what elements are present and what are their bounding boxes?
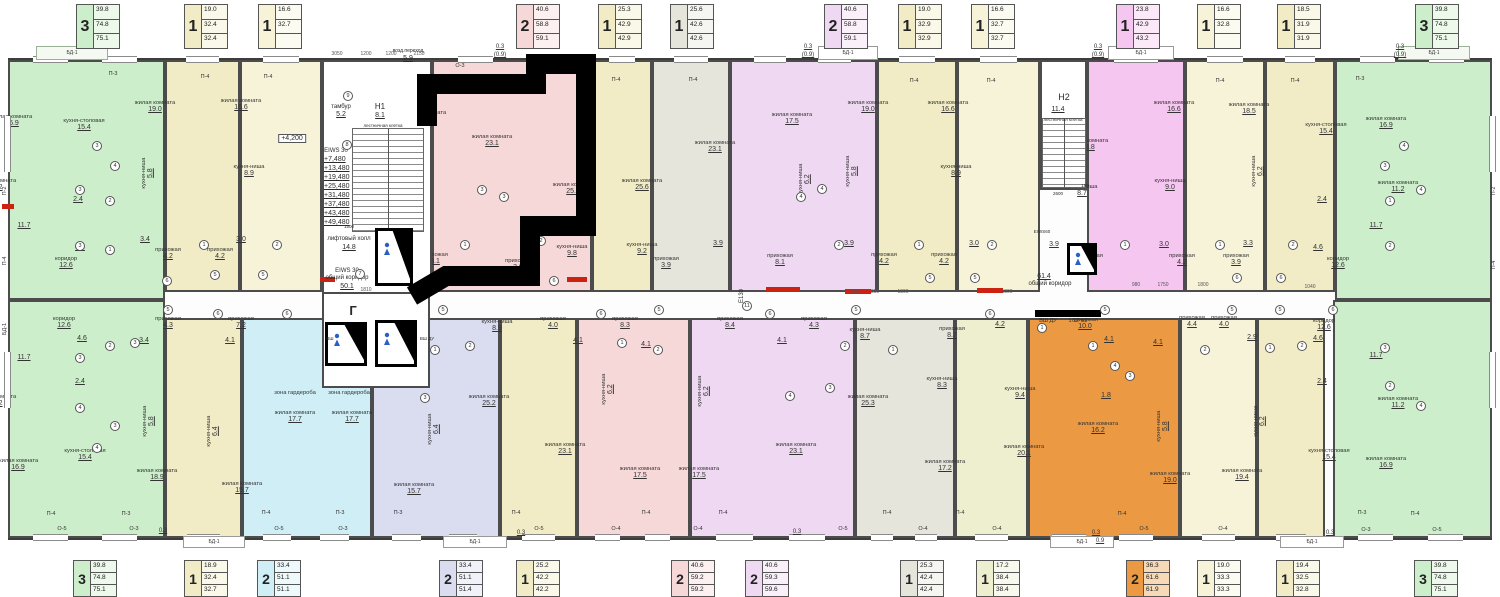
door-tag: 2 [1385, 241, 1395, 251]
door-tag: 3 [75, 241, 85, 251]
unit-t8[interactable] [877, 60, 957, 292]
door-tag: 2 [1297, 341, 1307, 351]
unit-summary-bottom-13[interactable]: 339.874.875.1 [1414, 560, 1458, 597]
plan-label: ВШ [326, 336, 333, 341]
window [1360, 56, 1395, 63]
unit-area-value: 19.0 [201, 5, 227, 20]
unit-b9[interactable] [955, 318, 1028, 538]
door-tag: 3 [477, 185, 487, 195]
door-tag: 1 [1088, 341, 1098, 351]
dimension-label: (0.9) [1394, 52, 1406, 58]
window [102, 534, 137, 541]
unit-summary-top-11[interactable]: 116.632.8 [1197, 4, 1241, 49]
axis-tag: О-5 [1139, 526, 1148, 532]
unit-area-values: 19.032.432.4 [201, 5, 227, 48]
unit-area-values: 33.451.151.1 [274, 561, 300, 596]
unit-area-value: 59.1 [533, 34, 559, 48]
unit-summary-top-9[interactable]: 116.632.732.7 [971, 4, 1015, 49]
plan-label: 50.1 [340, 283, 354, 290]
elevator-3 [375, 320, 417, 367]
dimension-label: 0.3 [1094, 44, 1102, 50]
dimension-label: (0.9) [802, 52, 814, 58]
unit-area-value: 25.2 [533, 561, 559, 573]
door-tag: 7 [355, 269, 365, 279]
level-mark: +31,480 [324, 191, 350, 200]
unit-summary-top-1[interactable]: 339.874.875.1 [76, 4, 120, 49]
plan-label: 5.9 [403, 55, 413, 62]
door-tag: 1 [199, 240, 209, 250]
axis-tag: О-3 [455, 63, 464, 69]
unit-area-value: 59.1 [841, 34, 867, 48]
window [915, 534, 937, 541]
dimension-label: 1040 [1304, 284, 1315, 290]
dimension-label: 980 [1132, 282, 1140, 288]
axis-tag: П-4 [987, 78, 996, 84]
dimension-label: (0.9) [494, 52, 506, 58]
unit-b2[interactable] [165, 318, 242, 538]
door-tag: 3 [75, 353, 85, 363]
unit-rooms-count: 1 [1277, 561, 1293, 596]
axis-tag: О-4 [918, 526, 927, 532]
unit-area-value: 42.2 [533, 585, 559, 596]
door-tag: 4 [110, 161, 120, 171]
unit-t3[interactable] [240, 60, 322, 292]
door-tag: 6 [162, 276, 172, 286]
unit-area-value: 36.3 [1143, 561, 1169, 573]
window [458, 56, 493, 63]
unit-area-value: 75.1 [90, 585, 116, 596]
unit-area-value: 32.7 [988, 20, 1014, 35]
door-tag: 4 [1399, 141, 1409, 151]
unit-area-value: 32.7 [275, 20, 301, 35]
level-mark: +13,480 [324, 164, 350, 173]
door-tag: 6 [1328, 305, 1338, 315]
unit-area-value: 74.8 [1431, 573, 1457, 585]
window [789, 534, 825, 541]
unit-area-value: 40.6 [762, 561, 788, 573]
unit-rooms-count: 2 [258, 561, 274, 596]
axis-tag: О-5 [838, 526, 847, 532]
door-tag: 2 [653, 345, 663, 355]
door-tag: 11 [742, 301, 752, 311]
door-tag: 2 [1385, 381, 1395, 391]
balcony-door-tag: БД-1 [1050, 536, 1114, 548]
door-tag: 1 [430, 345, 440, 355]
plan-label: EIWS60 [1034, 229, 1051, 234]
plan-label: 5.2 [336, 111, 346, 118]
unit-t11[interactable] [1185, 60, 1265, 292]
unit-t2[interactable] [165, 60, 240, 292]
axis-tag: П-4 [264, 74, 273, 80]
axis-tag: П-3 [1358, 510, 1367, 516]
unit-area-value: 16.6 [275, 5, 301, 20]
door-tag: 9 [343, 91, 353, 101]
plan-label: 8.1 [375, 112, 385, 119]
unit-rooms-count: 1 [1278, 5, 1294, 48]
unit-area-value: 33.3 [1214, 585, 1240, 596]
unit-area-value: 38.4 [993, 573, 1019, 585]
unit-rooms-count: 1 [977, 561, 993, 596]
elevator-icon [332, 333, 342, 347]
unit-area-values: 33.451.151.4 [456, 561, 482, 596]
door-tag: 4 [1416, 185, 1426, 195]
axis-tag: П-4 [1216, 78, 1225, 84]
unit-b8[interactable] [855, 318, 955, 538]
unit-area-values: 25.642.642.6 [687, 5, 713, 48]
window [33, 534, 68, 541]
unit-t4[interactable] [432, 60, 592, 292]
door-tag: 5 [1227, 305, 1237, 315]
unit-area-value [1214, 34, 1240, 48]
dimension-label: 0.3 [1092, 530, 1100, 536]
axis-tag: П-4 [689, 77, 698, 83]
door-tag: 3 [499, 192, 509, 202]
plan-label: Н2 [1058, 92, 1070, 102]
door-tag: 3 [1380, 161, 1390, 171]
level-mark: +25,480 [324, 182, 350, 191]
unit-summary-bottom-10[interactable]: 236.361.661.9 [1126, 560, 1170, 597]
unit-b5[interactable] [500, 318, 577, 538]
elevator-icon [382, 242, 392, 256]
unit-rooms-count: 1 [1117, 5, 1133, 48]
window [980, 56, 1017, 63]
window [1207, 56, 1242, 63]
door-tag: 6 [1232, 273, 1242, 283]
unit-area-value: 40.6 [841, 5, 867, 20]
unit-b11[interactable] [1180, 318, 1257, 538]
axis-tag: П-4 [201, 74, 210, 80]
window [1358, 534, 1393, 541]
window [754, 56, 786, 63]
balcony-door-tag: БД-1 [443, 536, 507, 548]
unit-area-value: 32.4 [201, 20, 227, 35]
door-tag: 6 [213, 309, 223, 319]
unit-rooms-count: 1 [599, 5, 615, 48]
unit-summary-top-4[interactable]: 240.658.859.1 [516, 4, 560, 49]
door-tag: 6 [282, 309, 292, 319]
axis-tag: П-4 [1411, 511, 1420, 517]
unit-area-values: 16.632.732.7 [988, 5, 1014, 48]
door-tag: 3 [92, 141, 102, 151]
door-tag: 4 [817, 184, 827, 194]
unit-area-value: 42.2 [533, 573, 559, 585]
dimension-label: 850 [871, 289, 879, 295]
unit-area-value: 40.6 [688, 561, 714, 573]
unit-summary-bottom-7[interactable]: 240.659.359.6 [745, 560, 789, 597]
unit-rooms-count: 3 [1416, 5, 1432, 48]
axis-tag: П-3 [336, 510, 345, 516]
unit-area-value: 42.6 [687, 20, 713, 35]
unit-area-values: 39.874.875.1 [1431, 561, 1457, 596]
level-mark: +37,480 [324, 200, 350, 209]
unit-area-value: 17.2 [993, 561, 1019, 573]
axis-tag: П-3 [394, 510, 403, 516]
unit-b1[interactable] [8, 300, 165, 538]
door-tag: 5 [851, 305, 861, 315]
door-tag: 2 [1200, 345, 1210, 355]
unit-area-values: 18.932.432.7 [201, 561, 227, 596]
unit-area-values: 19.033.333.3 [1214, 561, 1240, 596]
window [263, 534, 292, 541]
door-tag: 5 [163, 305, 173, 315]
door-tag: 3 [75, 185, 85, 195]
unit-rooms-count: 2 [517, 5, 533, 48]
plan-label: общий коридор [1029, 281, 1072, 287]
door-tag: 3 [1125, 371, 1135, 381]
unit-area-values: 23.842.943.2 [1133, 5, 1159, 48]
window [1202, 534, 1236, 541]
unit-area-values: 40.658.859.1 [841, 5, 867, 48]
unit-area-value: 33.4 [456, 561, 482, 573]
unit-summary-top-12[interactable]: 118.531.931.9 [1277, 4, 1321, 49]
unit-area-value: 32.4 [201, 573, 227, 585]
axis-tag: П-3 [109, 71, 118, 77]
door-tag: 2 [840, 341, 850, 351]
window [645, 534, 670, 541]
unit-summary-top-8[interactable]: 119.032.932.9 [898, 4, 942, 49]
unit-t1[interactable] [8, 60, 165, 300]
unit-summary-bottom-1[interactable]: 339.874.875.1 [73, 560, 117, 597]
door-tag: 5 [258, 270, 268, 280]
door-tag: 5 [210, 270, 220, 280]
axis-tag: П-4 [612, 77, 621, 83]
plan-label: 180 [1081, 183, 1089, 188]
axis-tag: П-4 [1291, 78, 1300, 84]
unit-summary-bottom-8[interactable]: 125.342.442.4 [900, 560, 944, 597]
axis-tag: О-4 [1218, 526, 1227, 532]
unit-summary-top-6[interactable]: 125.642.642.6 [670, 4, 714, 49]
axis-tag: П-4 [512, 510, 521, 516]
axis-tag: П-3 [122, 511, 131, 517]
unit-summary-top-2[interactable]: 119.032.432.4 [184, 4, 228, 49]
unit-area-values: 19.432.532.8 [1293, 561, 1319, 596]
axis-tag: О-4 [693, 526, 702, 532]
window [1489, 352, 1496, 408]
unit-area-value: 75.1 [93, 34, 119, 48]
unit-summary-bottom-6[interactable]: 240.659.259.2 [671, 560, 715, 597]
unit-summary-top-7[interactable]: 240.658.859.1 [824, 4, 868, 49]
unit-area-value: 16.6 [1214, 5, 1240, 20]
unit-summary-top-10[interactable]: 123.842.943.2 [1116, 4, 1160, 49]
unit-summary-bottom-9[interactable]: 117.238.438.4 [976, 560, 1020, 597]
dimension-label: 1800 [897, 289, 908, 295]
unit-summary-bottom-2[interactable]: 118.932.432.7 [184, 560, 228, 597]
unit-area-value: 16.6 [988, 5, 1014, 20]
door-tag: 2 [987, 240, 997, 250]
window [522, 534, 556, 541]
staircase-1 [352, 128, 424, 232]
unit-t13[interactable] [1335, 60, 1492, 300]
door-tag: 3 [420, 393, 430, 403]
unit-area-value: 58.8 [841, 20, 867, 35]
axis-tag: П-4 [642, 510, 651, 516]
door-tag: 6 [596, 309, 606, 319]
unit-area-value: 25.6 [687, 5, 713, 20]
unit-summary-top-13[interactable]: 339.874.875.1 [1415, 4, 1459, 49]
elevator-shaft-mark [392, 323, 414, 361]
unit-area-value: 40.6 [533, 5, 559, 20]
unit-b6[interactable] [577, 318, 690, 538]
unit-area-value: 75.1 [1432, 34, 1458, 48]
unit-summary-top-5[interactable]: 125.342.942.9 [598, 4, 642, 49]
dimension-label: 0.3 [1396, 44, 1404, 50]
unit-summary-bottom-12[interactable]: 119.432.532.8 [1276, 560, 1320, 597]
door-tag: 3 [130, 338, 140, 348]
elevator-1 [375, 228, 413, 286]
axis-tag: П-4 [262, 510, 271, 516]
unit-area-value: 18.9 [201, 561, 227, 573]
unit-summary-top-3[interactable]: 116.632.7 [258, 4, 302, 49]
door-tag: 1 [460, 240, 470, 250]
door-tag: 1 [1385, 196, 1395, 206]
window [528, 56, 563, 63]
unit-area-value: 32.8 [1214, 20, 1240, 35]
level-mark: +49,480 [324, 218, 350, 227]
dimension-label: 3050 [331, 51, 342, 57]
unit-rooms-count: 1 [671, 5, 687, 48]
dimension-label: 0.3 [804, 44, 812, 50]
dimension-label: (0.9) [1092, 52, 1104, 58]
window [263, 56, 299, 63]
door-tag: 6 [1276, 273, 1286, 283]
unit-area-values: 39.874.875.1 [93, 5, 119, 48]
unit-area-values: 19.032.932.9 [915, 5, 941, 48]
axis-tag: О-3 [1361, 527, 1370, 533]
door-tag: 5 [970, 273, 980, 283]
unit-rooms-count: 2 [825, 5, 841, 48]
unit-area-values: 39.874.875.1 [1432, 5, 1458, 48]
unit-area-value: 32.7 [201, 585, 227, 596]
unit-area-value: 39.8 [90, 561, 116, 573]
window [320, 534, 349, 541]
door-tag: 2 [536, 236, 546, 246]
unit-t5[interactable] [592, 60, 652, 292]
unit-area-value: 58.8 [533, 20, 559, 35]
plan-label: лестничная клетка [1043, 117, 1082, 122]
radiator-strip [2, 204, 14, 209]
unit-rooms-count: 2 [440, 561, 456, 596]
unit-t12[interactable] [1265, 60, 1335, 292]
unit-area-value: 38.4 [993, 585, 1019, 596]
unit-t10[interactable] [1087, 60, 1185, 292]
unit-rooms-count: 1 [1198, 5, 1214, 48]
unit-summary-bottom-11[interactable]: 119.033.333.3 [1197, 560, 1241, 597]
unit-rooms-count: 1 [517, 561, 533, 596]
plan-label: +4,200 [278, 134, 306, 143]
axis-tag: П-4 [2, 257, 8, 266]
window [186, 56, 219, 63]
dimension-label: 1810 [360, 287, 371, 293]
axis-tag: О-5 [57, 526, 66, 532]
door-tag: 1 [914, 240, 924, 250]
door-tag: 3 [1380, 343, 1390, 353]
unit-area-value: 74.8 [1432, 20, 1458, 35]
unit-area-value: 33.3 [1214, 573, 1240, 585]
axis-tag: П-4 [47, 511, 56, 517]
door-tag: 1 [1215, 240, 1225, 250]
unit-area-values: 39.874.875.1 [90, 561, 116, 596]
door-tag: 2 [465, 341, 475, 351]
elevator-shaft-mark [391, 231, 410, 279]
door-tag: 1 [1037, 323, 1047, 333]
unit-area-value: 59.2 [688, 573, 714, 585]
level-mark: +7,480 [324, 155, 346, 164]
unit-area-value: 42.9 [615, 34, 641, 48]
door-tag: 5 [654, 305, 664, 315]
plan-label: лестничная клетка [363, 123, 402, 128]
unit-area-value: 25.3 [917, 561, 943, 573]
plan-label: 11.4 [1051, 106, 1064, 113]
plan-label: Н1 [375, 102, 385, 111]
dimension-label: 0.9 [1096, 538, 1104, 544]
unit-area-values: 40.658.859.1 [533, 5, 559, 48]
window [899, 56, 934, 63]
window [716, 534, 752, 541]
unit-rooms-count: 2 [1127, 561, 1143, 596]
unit-t7[interactable] [730, 60, 877, 292]
door-tag: 3 [825, 383, 835, 393]
unit-area-value: 74.8 [93, 20, 119, 35]
unit-area-value: 39.8 [1431, 561, 1457, 573]
unit-rooms-count: 1 [1198, 561, 1214, 596]
unit-area-value: 51.4 [456, 585, 482, 596]
unit-area-values: 16.632.8 [1214, 5, 1240, 48]
unit-b13[interactable] [1333, 300, 1492, 538]
door-tag: 1 [1120, 240, 1130, 250]
unit-t9[interactable] [957, 60, 1040, 292]
dimension-label: 990 [852, 289, 860, 295]
unit-rooms-count: 1 [259, 5, 275, 48]
unit-area-value: 32.7 [988, 34, 1014, 48]
door-tag: 4 [796, 192, 806, 202]
unit-summary-bottom-4[interactable]: 233.451.151.4 [439, 560, 483, 597]
door-tag: 2 [272, 240, 282, 250]
unit-t6[interactable] [652, 60, 730, 292]
axis-tag: П-2 [1491, 187, 1497, 196]
door-tag: 3 [110, 421, 120, 431]
axis-tag: П-2 [2, 187, 8, 196]
door-tag: 1 [1265, 343, 1275, 353]
radiator-strip [977, 288, 1003, 293]
window [1119, 534, 1152, 541]
unit-area-values: 25.242.242.2 [533, 561, 559, 596]
door-tag: 4 [1110, 361, 1120, 371]
plan-label: 61.4 [1037, 273, 1051, 280]
window [595, 534, 620, 541]
unit-summary-bottom-3[interactable]: 233.451.151.1 [257, 560, 301, 597]
unit-summary-bottom-5[interactable]: 125.242.242.2 [516, 560, 560, 597]
dimension-label: 1800 [1001, 289, 1012, 295]
unit-area-value: 32.9 [915, 34, 941, 48]
dimension-label: 0.3 [1326, 530, 1334, 536]
unit-area-value: 32.9 [915, 20, 941, 35]
unit-b7[interactable] [690, 318, 855, 538]
unit-area-value: 23.8 [1133, 5, 1159, 20]
door-tag: 2 [834, 240, 844, 250]
axis-tag: П-4 [719, 510, 728, 516]
unit-b10[interactable] [1028, 318, 1180, 538]
unit-area-value: 59.2 [688, 585, 714, 596]
unit-area-values: 17.238.438.4 [993, 561, 1019, 596]
axis-tag: П-3 [1356, 76, 1365, 82]
unit-area-value: 51.1 [456, 573, 482, 585]
floor-plan: жилая комната16.9кухня-столовая15.4жилая… [0, 0, 1500, 597]
unit-area-value: 25.3 [615, 5, 641, 20]
unit-area-value: 74.8 [90, 573, 116, 585]
unit-area-value: 39.8 [93, 5, 119, 20]
unit-rooms-count: 1 [185, 5, 201, 48]
elevator-2 [325, 322, 367, 366]
